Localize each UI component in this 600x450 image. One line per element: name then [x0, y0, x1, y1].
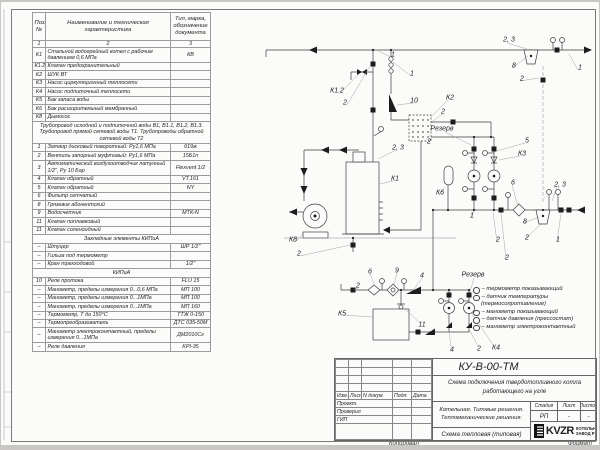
drawing-frame: [11, 9, 596, 442]
drawing-page: { "spec_table": { "headers": { "pos": "П…: [0, 0, 600, 450]
drawing-sheet: Поз. № Наименование и техническая характ…: [1, 2, 599, 445]
left-margin-strip: [4, 9, 11, 440]
